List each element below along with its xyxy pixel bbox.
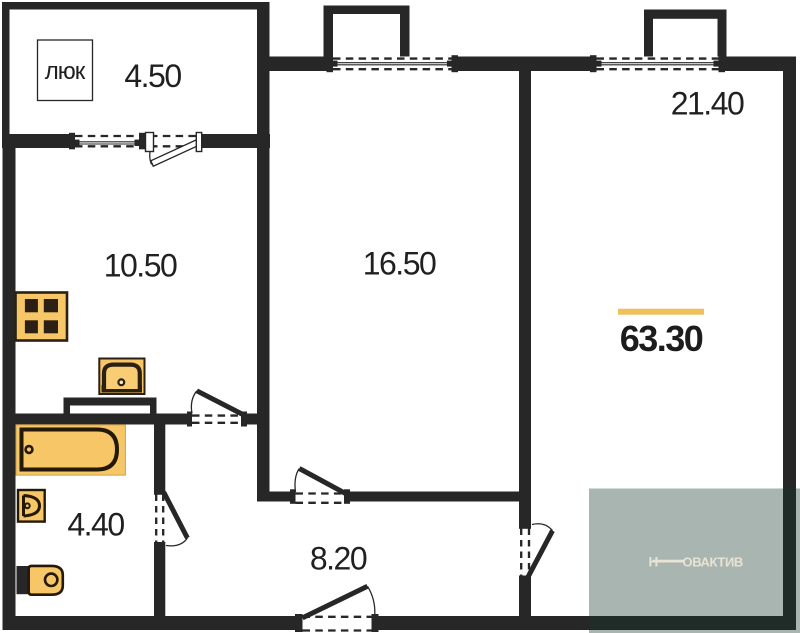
svg-text:8.20: 8.20 [310,541,367,577]
svg-text:4.40: 4.40 [67,507,124,543]
svg-text:ОВАКТИВ: ОВАКТИВ [683,555,743,570]
svg-text:10.50: 10.50 [104,248,177,284]
svg-text:16.50: 16.50 [363,246,436,282]
svg-text:4.50: 4.50 [124,58,181,94]
svg-text:люк: люк [45,58,86,85]
svg-text:63.30: 63.30 [620,318,703,359]
svg-text:21.40: 21.40 [671,86,744,122]
